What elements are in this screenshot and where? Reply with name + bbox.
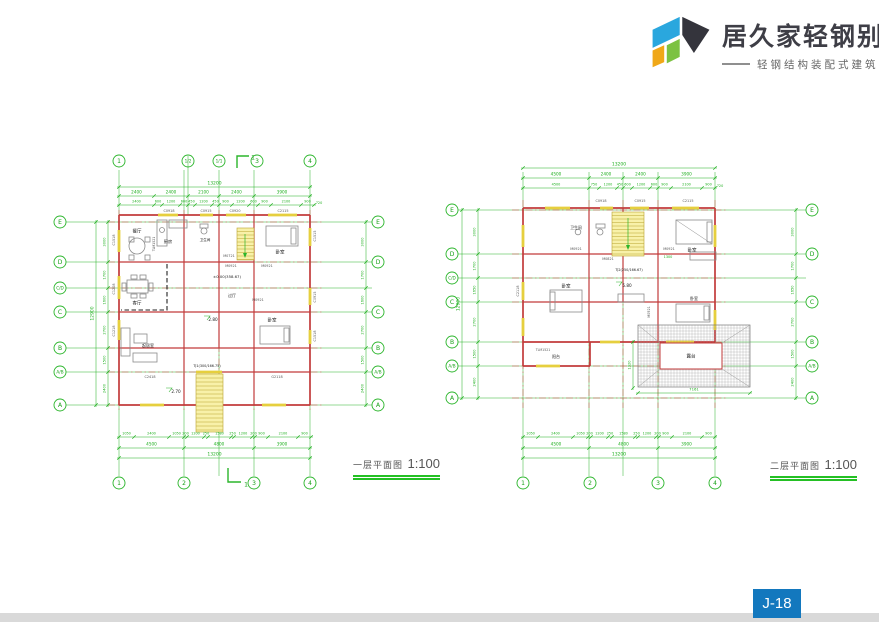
svg-text:1650: 1650	[473, 285, 477, 295]
svg-text:2.70: 2.70	[171, 389, 181, 394]
svg-text:450: 450	[212, 200, 218, 204]
svg-text:3000: 3000	[473, 227, 477, 237]
svg-text:1500: 1500	[361, 355, 365, 365]
svg-text:1: 1	[251, 155, 255, 162]
svg-text:1300: 1300	[664, 255, 673, 259]
svg-text:2: 2	[588, 480, 592, 487]
svg-text:2400: 2400	[131, 190, 142, 195]
svg-text:2100: 2100	[198, 190, 209, 195]
svg-text:12900: 12900	[456, 297, 462, 311]
svg-text:D: D	[376, 259, 381, 266]
svg-text:1050: 1050	[576, 432, 585, 436]
svg-text:TJ1(300/166.75): TJ1(300/166.75)	[192, 364, 221, 368]
svg-text:起居室: 起居室	[142, 342, 154, 348]
svg-text:3900: 3900	[681, 172, 692, 177]
svg-text:±0.00(358.67): ±0.00(358.67)	[213, 274, 241, 279]
svg-text:250: 250	[229, 432, 235, 436]
svg-text:卧室: 卧室	[562, 283, 571, 290]
svg-text:1/2: 1/2	[185, 159, 192, 164]
svg-text:2400: 2400	[132, 200, 141, 204]
svg-text:2.80: 2.80	[208, 317, 218, 322]
svg-text:M0821: M0821	[602, 257, 614, 261]
svg-text:C/D: C/D	[448, 276, 456, 281]
title-underline	[353, 475, 440, 477]
svg-text:C2118: C2118	[516, 286, 520, 297]
svg-text:餐厅: 餐厅	[133, 228, 142, 235]
subtitle-left-dash	[722, 63, 750, 65]
svg-text:卫生间: 卫生间	[570, 225, 582, 230]
svg-text:B: B	[810, 339, 814, 346]
svg-text:1320: 1320	[628, 360, 632, 370]
svg-text:B: B	[450, 339, 454, 346]
svg-text:1200: 1200	[637, 183, 646, 187]
plan-title-first-floor: 一层平面图 1:100	[353, 455, 440, 477]
svg-text:3: 3	[656, 480, 660, 487]
svg-text:2700: 2700	[103, 325, 107, 335]
svg-text:200: 200	[586, 432, 592, 436]
svg-text:2700: 2700	[361, 325, 365, 335]
svg-text:3: 3	[255, 158, 259, 165]
svg-text:1700: 1700	[361, 270, 365, 280]
svg-text:4: 4	[308, 158, 312, 165]
svg-text:1200: 1200	[604, 183, 613, 187]
svg-text:E: E	[376, 219, 380, 226]
svg-text:4500: 4500	[551, 172, 562, 177]
bottom-bar	[0, 613, 879, 622]
cad-canvas: 1320024002400210024003900240060012006004…	[0, 0, 879, 622]
svg-text:C: C	[58, 309, 62, 316]
svg-text:1600: 1600	[361, 295, 365, 305]
svg-text:A: A	[376, 402, 381, 409]
svg-text:C1518: C1518	[112, 235, 116, 246]
svg-text:720: 720	[717, 184, 723, 188]
svg-text:1650: 1650	[791, 285, 795, 295]
svg-text:TJ2(250/166.67): TJ2(250/166.67)	[614, 268, 643, 272]
svg-text:250: 250	[607, 432, 613, 436]
svg-text:4: 4	[308, 480, 312, 487]
svg-text:1580: 1580	[215, 432, 224, 436]
svg-text:卧室: 卧室	[690, 295, 698, 301]
svg-text:2400: 2400	[551, 432, 560, 436]
svg-text:1500: 1500	[791, 349, 795, 359]
svg-text:E: E	[450, 207, 454, 214]
svg-text:2400: 2400	[635, 172, 646, 177]
svg-text:C2115: C2115	[278, 209, 289, 213]
logo-face-green	[667, 39, 680, 64]
svg-text:5.80: 5.80	[622, 283, 632, 288]
svg-text:3900: 3900	[681, 442, 692, 447]
svg-text:2: 2	[182, 480, 186, 487]
svg-text:D: D	[810, 251, 815, 258]
svg-text:2100: 2100	[682, 183, 691, 187]
svg-text:3000: 3000	[361, 237, 365, 247]
svg-text:3000: 3000	[791, 227, 795, 237]
first-floor-plan: 1320024002400210024003900240060012006004…	[54, 155, 384, 490]
svg-text:1: 1	[521, 480, 525, 487]
svg-text:4: 4	[713, 480, 717, 487]
sheet-number-badge: J-18	[753, 589, 801, 618]
svg-text:200: 200	[654, 432, 660, 436]
svg-text:D: D	[450, 251, 455, 258]
svg-text:M0921: M0921	[252, 298, 264, 302]
svg-text:450: 450	[188, 200, 194, 204]
svg-text:M0921: M0921	[225, 264, 237, 268]
svg-text:C1515: C1515	[313, 231, 317, 242]
svg-text:4500: 4500	[146, 442, 157, 447]
svg-text:2400: 2400	[147, 432, 156, 436]
svg-text:1500: 1500	[103, 355, 107, 365]
svg-text:1050: 1050	[526, 432, 535, 436]
svg-text:600: 600	[250, 200, 256, 204]
svg-text:卧室: 卧室	[268, 317, 277, 324]
svg-text:过厅: 过厅	[228, 292, 236, 298]
svg-text:1: 1	[117, 158, 121, 165]
svg-text:200: 200	[182, 432, 188, 436]
svg-text:A: A	[450, 395, 455, 402]
svg-text:2400: 2400	[166, 190, 177, 195]
svg-text:E: E	[810, 207, 814, 214]
svg-text:3: 3	[252, 480, 256, 487]
logo-subtitle: 轻钢结构装配式建筑	[722, 57, 879, 72]
svg-text:B: B	[58, 345, 62, 352]
svg-text:M0921: M0921	[647, 306, 651, 318]
svg-text:900: 900	[261, 200, 267, 204]
svg-text:600: 600	[155, 200, 161, 204]
svg-text:2400: 2400	[103, 383, 107, 393]
svg-text:2700: 2700	[473, 317, 477, 327]
svg-text:900: 900	[705, 183, 711, 187]
svg-text:C1518: C1518	[313, 331, 317, 342]
svg-text:A/B: A/B	[448, 364, 455, 369]
svg-text:900: 900	[222, 200, 228, 204]
svg-text:13200: 13200	[612, 452, 626, 458]
logo-subtitle-text: 轻钢结构装配式建筑	[757, 57, 879, 72]
svg-text:900: 900	[304, 200, 310, 204]
svg-text:A/B: A/B	[56, 370, 63, 375]
svg-text:1200: 1200	[199, 200, 208, 204]
svg-text:2400: 2400	[791, 377, 795, 387]
svg-text:2700: 2700	[791, 317, 795, 327]
svg-text:卧室: 卧室	[688, 247, 697, 254]
logo-title: 居久家轻钢别墅	[722, 17, 879, 53]
svg-text:C0918: C0918	[164, 209, 175, 213]
svg-text:7161: 7161	[689, 387, 699, 392]
svg-text:2100: 2100	[279, 432, 288, 436]
svg-text:4500: 4500	[552, 183, 561, 187]
svg-text:M0921: M0921	[663, 247, 675, 251]
svg-text:C0915: C0915	[635, 199, 646, 203]
logo-face-dark	[682, 17, 709, 53]
svg-text:C: C	[450, 299, 454, 306]
svg-text:C2115: C2115	[683, 199, 694, 203]
svg-text:720: 720	[316, 201, 322, 205]
svg-text:600: 600	[651, 183, 657, 187]
svg-text:1200: 1200	[236, 200, 245, 204]
svg-text:600: 600	[624, 183, 630, 187]
svg-text:4800: 4800	[618, 442, 629, 447]
svg-text:C0918: C0918	[596, 199, 607, 203]
svg-text:900: 900	[258, 432, 264, 436]
svg-text:1200: 1200	[191, 432, 200, 436]
svg-text:1700: 1700	[791, 261, 795, 271]
svg-text:4800: 4800	[214, 442, 225, 447]
svg-text:C1218: C1218	[112, 326, 116, 337]
svg-text:900: 900	[661, 183, 667, 187]
second-floor-plan: 7161132013200450024002400390045007501200…	[446, 162, 818, 489]
logo-cube-icon	[650, 16, 712, 72]
svg-text:A/B: A/B	[808, 364, 815, 369]
svg-text:A: A	[810, 395, 815, 402]
svg-text:1600: 1600	[103, 295, 107, 305]
svg-text:1580: 1580	[619, 432, 628, 436]
svg-text:B: B	[376, 345, 380, 352]
svg-text:E: E	[58, 219, 62, 226]
logo-text-block: 居久家轻钢别墅 轻钢结构装配式建筑	[722, 17, 879, 72]
plan-scale-text: 1:100	[407, 456, 440, 471]
svg-text:1200: 1200	[167, 200, 176, 204]
svg-text:2100: 2100	[282, 200, 291, 204]
svg-text:250: 250	[203, 432, 209, 436]
svg-text:G2118: G2118	[271, 375, 282, 379]
svg-text:D: D	[58, 259, 63, 266]
svg-text:C0920: C0920	[230, 209, 241, 213]
title-underline	[770, 476, 857, 478]
svg-text:2400: 2400	[601, 172, 612, 177]
plan-title-second-floor: 二层平面图 1:100	[770, 456, 857, 478]
svg-text:C2418: C2418	[145, 375, 156, 379]
svg-text:2400: 2400	[361, 383, 365, 393]
svg-text:3900: 3900	[277, 442, 288, 447]
svg-text:2400: 2400	[231, 190, 242, 195]
svg-text:900: 900	[662, 432, 668, 436]
svg-text:450: 450	[617, 183, 623, 187]
svg-text:1200: 1200	[643, 432, 652, 436]
logo-face-yellow	[653, 45, 665, 67]
svg-text:C/D: C/D	[56, 286, 64, 291]
svg-text:900: 900	[705, 432, 711, 436]
svg-text:C: C	[810, 299, 814, 306]
svg-text:1050: 1050	[122, 432, 131, 436]
svg-text:M0921: M0921	[261, 264, 273, 268]
svg-text:厨房: 厨房	[164, 238, 172, 245]
svg-text:卧室: 卧室	[276, 249, 285, 256]
svg-text:1/1: 1/1	[216, 159, 223, 164]
svg-text:13200: 13200	[207, 452, 221, 458]
svg-text:1: 1	[117, 480, 121, 487]
svg-text:A/B: A/B	[374, 370, 381, 375]
svg-text:900: 900	[301, 432, 307, 436]
svg-text:A: A	[58, 402, 63, 409]
svg-text:1050: 1050	[172, 432, 181, 436]
svg-text:3900: 3900	[277, 190, 288, 195]
svg-text:1200: 1200	[239, 432, 248, 436]
svg-text:13200: 13200	[612, 162, 626, 168]
svg-text:露台: 露台	[687, 353, 696, 360]
svg-text:C0915: C0915	[313, 292, 317, 303]
svg-text:2400: 2400	[473, 377, 477, 387]
svg-text:卫生间: 卫生间	[200, 237, 211, 242]
svg-text:客厅: 客厅	[133, 300, 142, 307]
svg-text:1: 1	[244, 482, 248, 489]
svg-text:1700: 1700	[103, 270, 107, 280]
plan-scale-text: 1:100	[824, 457, 857, 472]
svg-text:13200: 13200	[207, 181, 221, 187]
svg-text:1200: 1200	[595, 432, 604, 436]
plan-title-text: 一层平面图	[353, 460, 403, 470]
svg-text:TLM1521: TLM1521	[152, 237, 156, 253]
plan-title-text: 二层平面图	[770, 461, 820, 471]
svg-text:M0721: M0721	[223, 254, 235, 258]
svg-text:750: 750	[591, 183, 597, 187]
svg-text:1700: 1700	[473, 261, 477, 271]
svg-text:TLM1521: TLM1521	[535, 348, 551, 352]
svg-text:M0921: M0921	[570, 247, 582, 251]
drawing-sheet-page: { "logo": { "title": "居久家轻钢别墅", "subtitl…	[0, 0, 879, 622]
svg-text:1500: 1500	[473, 349, 477, 359]
svg-text:250: 250	[633, 432, 639, 436]
svg-text:阳台: 阳台	[552, 353, 560, 359]
svg-text:200: 200	[250, 432, 256, 436]
svg-text:C0915: C0915	[201, 209, 212, 213]
svg-text:C1208: C1208	[112, 284, 116, 295]
svg-text:C: C	[376, 309, 380, 316]
svg-text:2100: 2100	[683, 432, 692, 436]
svg-text:600: 600	[181, 200, 187, 204]
svg-text:3000: 3000	[103, 237, 107, 247]
svg-text:4500: 4500	[551, 442, 562, 447]
svg-text:12900: 12900	[90, 306, 96, 320]
company-logo: 居久家轻钢别墅 轻钢结构装配式建筑	[650, 16, 879, 72]
